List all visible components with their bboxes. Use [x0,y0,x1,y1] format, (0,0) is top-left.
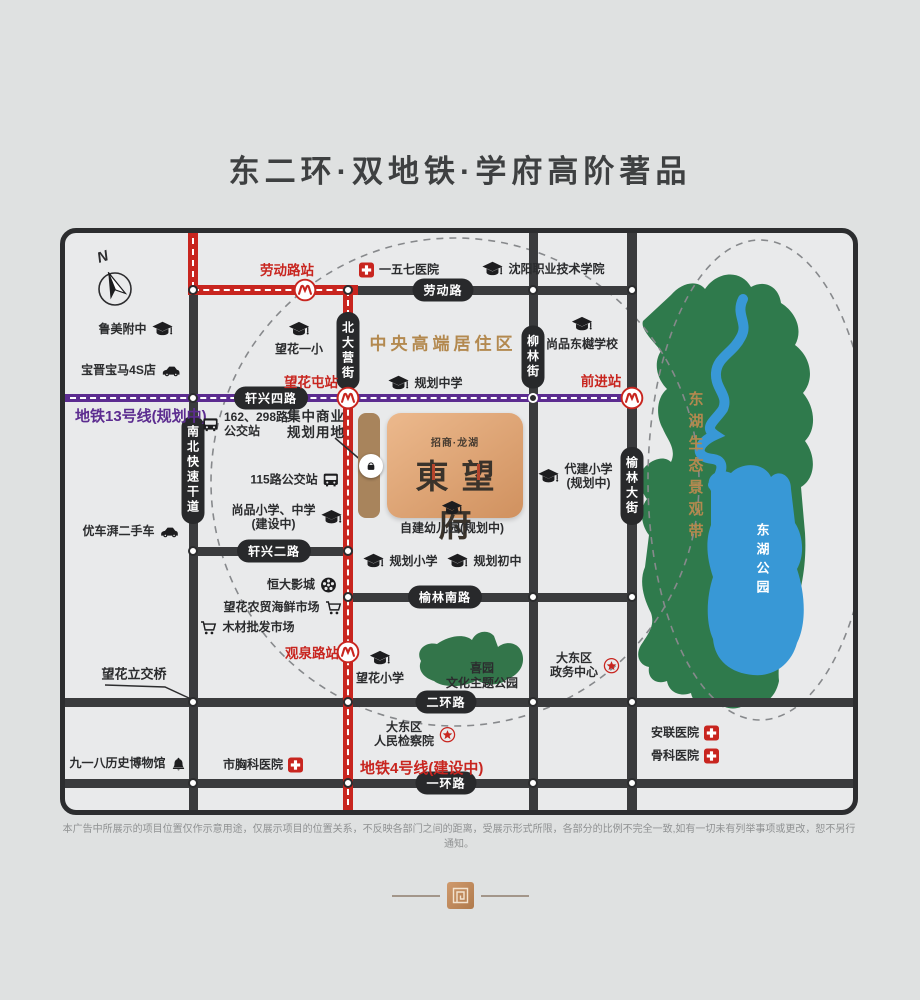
poi-item: 宝晋宝马4S店 [81,361,181,381]
road-junction-dot [528,697,538,707]
cart-icon [199,619,217,637]
lake-park-label: 东湖公园 [753,523,772,599]
poi-label: 骨科医院 [651,749,699,763]
poi-item: 自建幼儿园(规划中) [400,498,504,536]
metro-station-icon [337,641,360,664]
road-label-beidaying: 北大营街 [337,312,360,390]
road-junction-dot [343,778,353,788]
poi-label: 代建小学(规划中) [564,463,612,491]
cap-icon [481,259,503,281]
cross-icon [704,726,719,741]
station-label-laodonglu: 劳动路站 [260,259,314,279]
poi-label: 集中商业规划用地 [287,409,345,441]
poi-item: 尚品小学、中学(建设中) [231,504,342,532]
road-junction-dot [188,393,198,403]
poi-label: 沈阳职业技术学院 [508,263,604,277]
lake-belt-label: 东湖生态景观带 [685,391,706,545]
cap-icon [369,648,391,670]
poi-item: 安联医院 [651,726,719,741]
poi-item: 115路公交站 [250,472,339,489]
cap-icon [387,373,409,395]
station-label-wanghuatun: 望花屯站 [284,371,338,391]
car-icon [161,361,181,381]
road-junction-dot [343,697,353,707]
cross-icon [704,749,719,764]
poi-label: 优车湃二手车 [82,525,154,539]
road-junction-dot [528,592,538,602]
metro-line13-label: 地铁13号线(规划中) [75,405,207,426]
poi-label: 大东区人民检察院 [374,721,434,749]
road-junction-dot [627,697,637,707]
poi-item: 望花小学 [356,648,404,686]
seal-mark [477,464,480,480]
road-label-laodong: 劳动路 [412,279,473,302]
star-icon [603,658,620,675]
road-label-erhuan: 二环路 [415,691,476,714]
poi-label: 市胸科医院 [223,758,283,772]
poi-label: 安联医院 [651,726,699,740]
road-label-liulin: 柳林街 [522,326,545,389]
poi-item: 鲁美附中 [98,319,173,341]
poi-label: 鲁美附中 [98,323,146,337]
disclaimer-text: 本广告中所展示的项目位置仅作示意用途，仅展示项目的位置关系，不反映各部门之间的距… [60,820,858,850]
poi-label: 恒大影城 [267,578,315,592]
road-junction-dot [188,778,198,788]
cap-icon [446,551,468,573]
cap-icon [441,498,463,520]
metro-station-icon [621,387,644,410]
cart-icon [325,599,343,617]
brand-footer [0,882,920,909]
road-label-xuanxing2: 轩兴二路 [237,540,311,563]
poi-item: 木材批发市场 [199,619,294,637]
brand-seal-icon [447,882,474,909]
metro-line4-label: 地铁4号线(建设中) [360,757,483,778]
metro-station-icon [294,279,317,302]
poi-item: 规划小学 [362,551,437,573]
poi-label: 望花一小 [275,343,323,357]
poi-item: 规划初中 [446,551,521,573]
poi-label: 115路公交站 [250,473,317,487]
page-title: 东二环·双地铁·学府高阶著品 [0,146,920,191]
road-label-yulindajie: 榆林大街 [621,447,644,525]
seal-mark [432,464,435,480]
poi-label: 九一八历史博物馆 [69,757,165,771]
poi-label: 规划初中 [473,555,521,569]
star-icon [439,727,456,744]
poi-item: 沈阳职业技术学院 [481,259,604,281]
road-junction-dot [188,697,198,707]
road-junction-dot [528,285,538,295]
road-label-yulinnan: 榆林南路 [408,586,482,609]
cross-icon [288,758,303,773]
poi-item: 市胸科医院 [223,758,303,773]
cap-icon [152,319,174,341]
xiyuan-park-label-line2: 文化主题公园 [446,676,518,691]
road-junction-dot [188,285,198,295]
poi-item: 尚品东樾学校 [546,314,618,352]
metro-station-icon [337,387,360,410]
bridge-label: 望花立交桥 [101,664,166,683]
poi-item: 骨科医院 [651,749,719,764]
poi-label: 尚品小学、中学(建设中) [231,504,315,532]
bridge-leader-line [105,685,191,699]
poi-item: 九一八历史博物馆 [69,756,186,772]
poi-label: 规划小学 [389,555,437,569]
poi-label: 162、298路公交站 [224,411,288,439]
divider-line [481,895,529,897]
cap-icon [362,551,384,573]
poi-label: 望花小学 [356,672,404,686]
film-icon [320,577,337,594]
cap-icon [321,507,343,529]
area-annotation: 集中商业规划用地 [287,409,345,441]
car-icon [160,522,180,542]
road-junction-dot [528,778,538,788]
poi-label: 尚品东樾学校 [546,338,618,352]
road-junction-dot [343,592,353,602]
poi-item: 规划中学 [387,373,462,395]
poi-item: 恒大影城 [267,577,337,594]
district-label: 中央高端居住区 [370,330,517,355]
poi-item: 优车湃二手车 [82,522,179,542]
poi-item: 望花农贸海鲜市场 [223,599,342,617]
poi-item: 大东区政务中心 [550,652,620,680]
poi-label: 规划中学 [414,377,462,391]
poi-item: 一五七医院 [359,263,439,278]
poi-label: 望花农贸海鲜市场 [223,601,319,615]
road-junction-dot [188,546,198,556]
road-junction-dot [343,285,353,295]
poi-label: 自建幼儿园(规划中) [400,522,504,536]
poi-label: 一五七医院 [379,263,439,277]
cross-icon [359,263,374,278]
bag-icon [364,459,378,473]
bell-icon [171,756,187,772]
project-location-pin [359,454,383,478]
divider-line [392,895,440,897]
road-junction-dot [627,592,637,602]
advert-page: 东二环·双地铁·学府高阶著品 劳 [0,0,920,1000]
poi-item: 代建小学(规划中) [537,463,612,491]
road-junction-dot [343,546,353,556]
project-brand: 招商·龙湖 [387,434,523,449]
location-map: 劳动路 轩兴四路 轩兴二路 榆林南路 二环路 一环路 北大营街 柳林街 榆林大街… [60,228,858,815]
xiyuan-park-label-line1: 喜园 [446,661,518,676]
poi-label: 宝晋宝马4S店 [81,364,156,378]
poi-item: 望花一小 [275,319,323,357]
poi-label: 大东区政务中心 [550,652,598,680]
cap-icon [571,314,593,336]
station-label-guanquanlu: 观泉路站 [285,642,339,662]
bus-icon [202,417,219,434]
road-junction-dot [627,285,637,295]
xiyuan-park-label: 喜园 文化主题公园 [446,661,518,691]
road-junction-dot [627,778,637,788]
poi-item: 162、298路公交站 [202,411,288,439]
cap-icon [537,466,559,488]
road-junction-dot [528,393,538,403]
bus-icon [323,472,340,489]
poi-label: 木材批发市场 [222,621,294,635]
station-label-qianjin: 前进站 [581,370,622,390]
poi-item: 大东区人民检察院 [374,721,456,749]
cap-icon [288,319,310,341]
